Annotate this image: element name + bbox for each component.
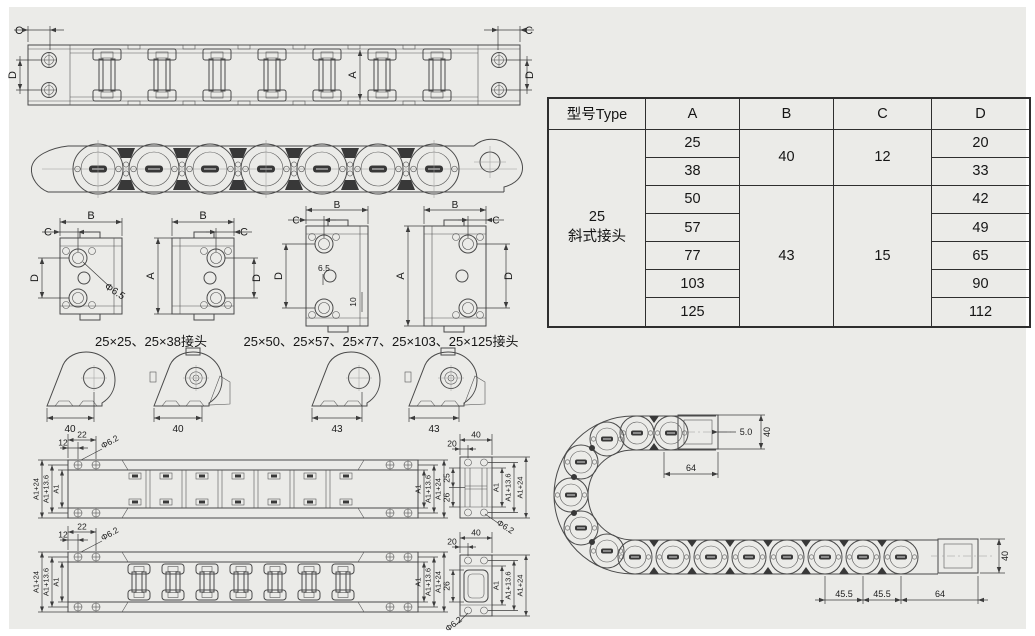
dim-label-dia: Φ6.2: [443, 614, 464, 633]
dim-label-c: C: [492, 216, 499, 227]
joint-body: [172, 232, 234, 320]
table-cell-a: 103: [646, 270, 740, 298]
col-header-type: 型号Type: [548, 98, 646, 129]
dim-d: D: [477, 244, 515, 308]
dim-label-a: A: [395, 272, 407, 280]
dim-label-pitch1: 45.5: [835, 589, 853, 599]
dim-label-c: C: [240, 227, 248, 239]
table-cell-d: 49: [932, 213, 1031, 241]
col-header-d: D: [932, 98, 1031, 129]
dim-label-pitch: 10: [348, 297, 358, 307]
dim-label-a1: A1: [492, 581, 501, 590]
dim-label-40: 40: [471, 528, 481, 538]
table-cell-c: 12: [834, 129, 932, 185]
dim-d: D: [273, 244, 315, 308]
dim-d-left: D: [7, 56, 41, 94]
joint-body: [306, 220, 368, 332]
dim-label-right-inner: A1: [414, 484, 423, 493]
dim-c-left: C: [14, 25, 64, 50]
dim-label-left-outer: A1+24: [32, 571, 41, 593]
dim-label-right-mid: A1+13.6: [424, 568, 433, 596]
end-view-body: [460, 555, 492, 616]
dim-label-left-outer: A1+24: [32, 478, 41, 500]
dim-d-right: D: [507, 56, 536, 94]
dim-label-top-length: 64: [686, 463, 696, 473]
spec-table: 型号Type A B C D 25 斜式接头 25 40 12 20 38 33…: [547, 97, 1031, 328]
dim-label-26: 26: [442, 493, 452, 503]
type-cell: 25 斜式接头: [548, 129, 646, 327]
drawing-chain-link-view: A1+24 A1+13.6 A1 A1 A1+13.6 A1+24 22 12 …: [18, 520, 452, 628]
dim-label-c-right: C: [525, 25, 533, 37]
dim-hole-dia: Φ6.5: [83, 262, 127, 303]
dim-label-right-mid: A1+13.6: [424, 475, 433, 503]
drawing-joint-25x50-left: B C D 6.5 10: [272, 200, 396, 334]
dim-label-d: D: [251, 274, 263, 282]
drawing-joint-25x25-right: B C A D: [146, 208, 266, 330]
dim-label-dia: Φ6.2: [99, 525, 120, 543]
dim-a-mid: A: [347, 50, 362, 100]
dim-label-d: D: [503, 272, 515, 280]
drawing-chain-top-view: C C D D A: [12, 12, 536, 122]
dim-label-20: 20: [447, 537, 457, 547]
chain-body: [68, 552, 418, 612]
dim-d: D: [29, 258, 69, 298]
table-cell-a: 25: [646, 129, 740, 157]
col-header-a: A: [646, 98, 740, 129]
dim-label-22: 22: [77, 430, 87, 440]
bracket-1: 40: [47, 352, 115, 435]
dim-label-dia: Φ6.2: [99, 433, 120, 451]
chain-top-body: [28, 45, 520, 105]
dims-bottom: 45.5 45.5 64: [815, 576, 988, 604]
table-cell-a: 125: [646, 298, 740, 327]
dim-label-25: 25: [442, 473, 452, 483]
dims: 40 20 26 A1 A1+13.6 A1+24 Φ6.2: [442, 528, 531, 634]
bracket-3: 43: [312, 352, 380, 435]
dim-label-d: D: [29, 274, 41, 282]
joint-body: [60, 232, 122, 320]
dim-label-left-inner: A1: [52, 484, 61, 493]
dim-label-top-height: 40: [762, 427, 772, 437]
drawing-end-view-open: 40 20 25 26 A1 A1+13.6 A1+24 Φ6.2: [446, 430, 548, 530]
bracket-2: 40: [150, 348, 230, 435]
dim-c: C: [42, 227, 90, 253]
dim-label-a1-24: A1+24: [516, 575, 525, 597]
dim-label-26: 26: [442, 581, 452, 591]
dim-label-40: 40: [471, 430, 481, 440]
dim-c: C: [206, 227, 252, 253]
dim-label-bottom-height: 40: [1000, 551, 1010, 561]
dim-label-20: 20: [447, 439, 457, 449]
bend-body: [554, 415, 993, 574]
dim-label-left-mid: A1+13.6: [42, 475, 51, 503]
table-cell-a: 50: [646, 185, 740, 213]
chain-body: [68, 460, 418, 518]
dim-a: A: [395, 226, 424, 326]
col-header-b: B: [740, 98, 834, 129]
dim-label-left-mid: A1+13.6: [42, 568, 51, 596]
dim-label-a1-13: A1+13.6: [504, 571, 513, 599]
table-cell-d: 20: [932, 129, 1031, 157]
dims-right: A1 A1+13.6 A1+24: [414, 460, 449, 518]
dims-top: 22 12 Φ6.2: [58, 522, 120, 553]
dim-label-gap: 5.0: [740, 427, 753, 437]
dim-label-d-right: D: [524, 71, 536, 79]
dim-d: D: [225, 258, 263, 298]
table-cell-d: 42: [932, 185, 1031, 213]
drawing-chain-bend-view: 5.0 40 64 45.5 45.5 64 40: [553, 388, 1027, 634]
table-cell-b: 40: [740, 129, 834, 185]
drawing-chain-open-view: A1+24 A1+13.6 A1 A1 A1+13.6 A1+24 22 12 …: [18, 428, 452, 526]
table-header-row: 型号Type A B C D: [548, 98, 1030, 129]
dim-label-c: C: [292, 216, 299, 227]
table-cell-a: 77: [646, 242, 740, 270]
dim-label-12: 12: [58, 530, 68, 540]
dim-label-b: B: [334, 200, 341, 211]
dim-c: C: [288, 216, 336, 239]
dims-left: A1+24 A1+13.6 A1: [32, 460, 69, 518]
chain-side-body: [31, 139, 522, 198]
table-row: 25 斜式接头 25 40 12 20: [548, 129, 1030, 157]
table-cell-c: 15: [834, 185, 932, 327]
dim-label-c: C: [44, 227, 52, 239]
dim-label-hole: 6.5: [318, 263, 330, 273]
dim-c: C: [458, 216, 504, 239]
table-cell-d: 90: [932, 270, 1031, 298]
dim-label-a1: A1: [492, 483, 501, 492]
table-cell-d: 65: [932, 242, 1031, 270]
dim-label-right-inner: A1: [414, 577, 423, 586]
table-cell-a: 38: [646, 157, 740, 185]
dim-label-left-inner: A1: [52, 577, 61, 586]
dim-label-b: B: [452, 200, 459, 211]
dim-top-length: 64: [664, 452, 718, 478]
page: { "colors": { "page_bg": "#ffffff", "pan…: [0, 0, 1035, 636]
dim-label-a: A: [347, 71, 359, 79]
dims: 40 20 25 26 A1 A1+13.6 A1+24 Φ6.2: [442, 430, 531, 536]
joint-body: [424, 220, 486, 332]
dim-c-right: C: [484, 25, 534, 50]
table-cell-d: 112: [932, 298, 1031, 327]
dim-label-a1-24: A1+24: [516, 477, 525, 499]
col-header-c: C: [834, 98, 932, 129]
dims-top: 22 12 Φ6.2: [58, 430, 120, 461]
dim-label-c-left: C: [15, 25, 23, 37]
dim-label-a: A: [145, 272, 157, 280]
dims-left: A1+24 A1+13.6 A1: [32, 552, 69, 612]
dim-label-b: B: [199, 210, 206, 222]
dim-label-a1-13: A1+13.6: [504, 473, 513, 501]
bracket-4: 43: [405, 348, 485, 435]
table-cell-d: 33: [932, 157, 1031, 185]
drawing-joint-25x50-right: B C A D: [396, 200, 520, 334]
dim-label-d: D: [273, 272, 285, 280]
table-cell-a: 57: [646, 213, 740, 241]
drawing-joint-25x25-left: B C D Φ6.5: [28, 208, 148, 330]
drawing-end-view-link: 40 20 26 A1 A1+13.6 A1+24 Φ6.2: [446, 528, 548, 634]
dim-label-22: 22: [77, 522, 87, 532]
dim-label-pitch2: 45.5: [873, 589, 891, 599]
dim-label-12: 12: [58, 438, 68, 448]
dim-label-end-length: 64: [935, 589, 945, 599]
dim-label-d-left: D: [7, 71, 19, 79]
table-cell-b: 43: [740, 185, 834, 327]
dim-label-dia: Φ6.5: [102, 281, 127, 302]
dim-label-b: B: [87, 210, 94, 222]
dim-a: A: [145, 238, 172, 314]
drawing-end-brackets: 40 40 43 43: [30, 344, 482, 438]
